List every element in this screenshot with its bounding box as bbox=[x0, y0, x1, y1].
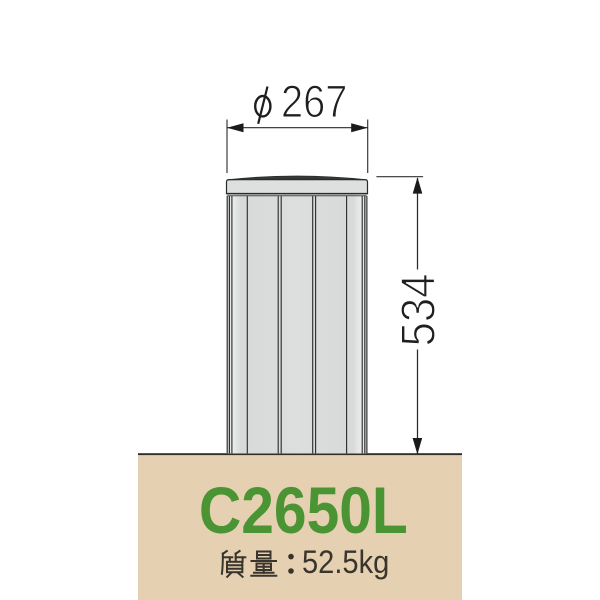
svg-text:534: 534 bbox=[390, 274, 445, 347]
svg-text:267: 267 bbox=[281, 77, 347, 128]
svg-text:C2650L: C2650L bbox=[199, 474, 408, 548]
svg-text:52.5kg: 52.5kg bbox=[302, 544, 389, 581]
